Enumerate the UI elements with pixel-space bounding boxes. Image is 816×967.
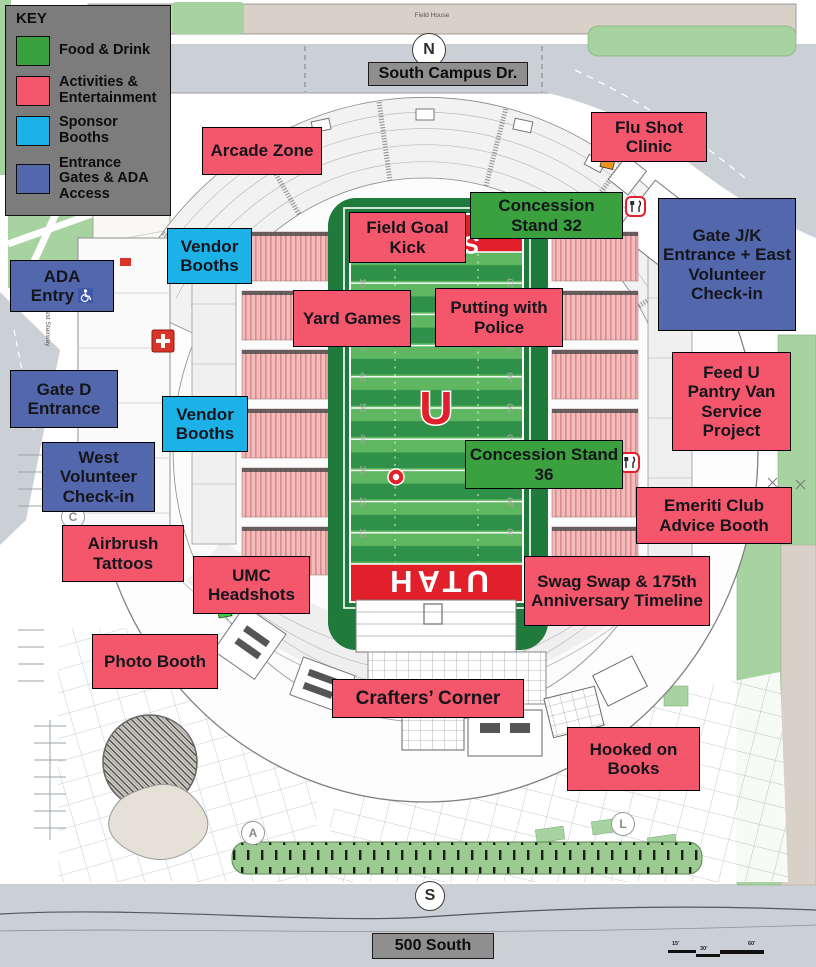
svg-text:40: 40 [358,372,368,382]
label-swag-swap: Swag Swap & 175th Anniversary Timeline [524,556,710,626]
wheelchair-icon [78,288,93,303]
label-vendor-booths-south: Vendor Booths [162,396,248,452]
svg-text:50: 50 [505,403,515,413]
label-crafters-corner: Crafters’ Corner [332,679,524,718]
label-flu-shot-clinic: Flu Shot Clinic [591,112,707,162]
key-item-activities: Activities & Entertainment [16,75,162,106]
label-ada-entry: ADA Entry [10,260,114,312]
key-title: KEY [16,10,162,27]
label-airbrush-tattoos: Airbrush Tattoos [62,525,184,582]
gate-marker-l: L [611,812,635,836]
sponsor-swatch [16,116,50,146]
svg-text:40: 40 [505,372,515,382]
svg-text:10: 10 [358,278,368,288]
label-gate-d-entrance: Gate D Entrance [10,370,118,428]
activities-swatch [16,76,50,106]
food-service-icon-north [626,197,645,216]
label-umc-headshots: UMC Headshots [193,556,310,614]
label-emeriti-club: Emeriti Club Advice Booth [636,487,792,544]
key-item-entrance: Entrance Gates & ADA Access [16,156,162,203]
field-house-label: Field House [362,12,502,19]
key-item-food: Food & Drink [16,36,162,66]
gate-marker-a: A [241,821,265,845]
svg-text:10: 10 [358,528,368,538]
street-label-north: South Campus Dr. [368,62,528,86]
compass-marker-s: S [415,881,445,911]
label-concession-stand-32: Concession Stand 32 [470,192,623,239]
svg-text:20: 20 [505,497,515,507]
svg-text:20: 20 [358,497,368,507]
stadium-event-map: U S UTAH 10 20 30 40 50 40 30 20 10 10 2… [0,0,816,967]
map-key: KEY Food & Drink Activities & Entertainm… [5,5,171,216]
svg-text:10: 10 [505,528,515,538]
label-gate-jk-entrance: Gate J/K Entrance + East Volunteer Check… [658,198,796,331]
svg-text:40: 40 [358,434,368,444]
svg-text:50: 50 [358,403,368,413]
svg-text:10: 10 [505,278,515,288]
label-hooked-on-books: Hooked on Books [567,727,700,791]
scale-tick-30: 30' [700,946,707,952]
label-field-goal-kick: Field Goal Kick [349,212,466,263]
entrance-swatch [16,164,50,194]
label-vendor-booths-north: Vendor Booths [167,228,252,284]
label-concession-stand-36: Concession Stand 36 [465,440,623,489]
scale-tick-60: 60' [748,941,755,947]
svg-text:30: 30 [358,465,368,475]
hedge-row [232,842,702,874]
key-item-sponsor: Sponsor Booths [16,115,162,146]
scale-tick-15: 15' [672,941,679,947]
label-putting-with-police: Putting with Police [435,288,563,347]
label-yard-games: Yard Games [293,290,411,347]
south-endzone-text: UTAH [385,564,489,599]
street-label-south: 500 South [372,933,494,959]
food-swatch [16,36,50,66]
center-logo: U [419,382,452,434]
label-arcade-zone: Arcade Zone [202,127,322,175]
label-photo-booth: Photo Booth [92,634,218,689]
label-west-volunteer-checkin: West Volunteer Check-in [42,442,155,512]
label-feed-u-pantry: Feed U Pantry Van Service Project [672,352,791,451]
